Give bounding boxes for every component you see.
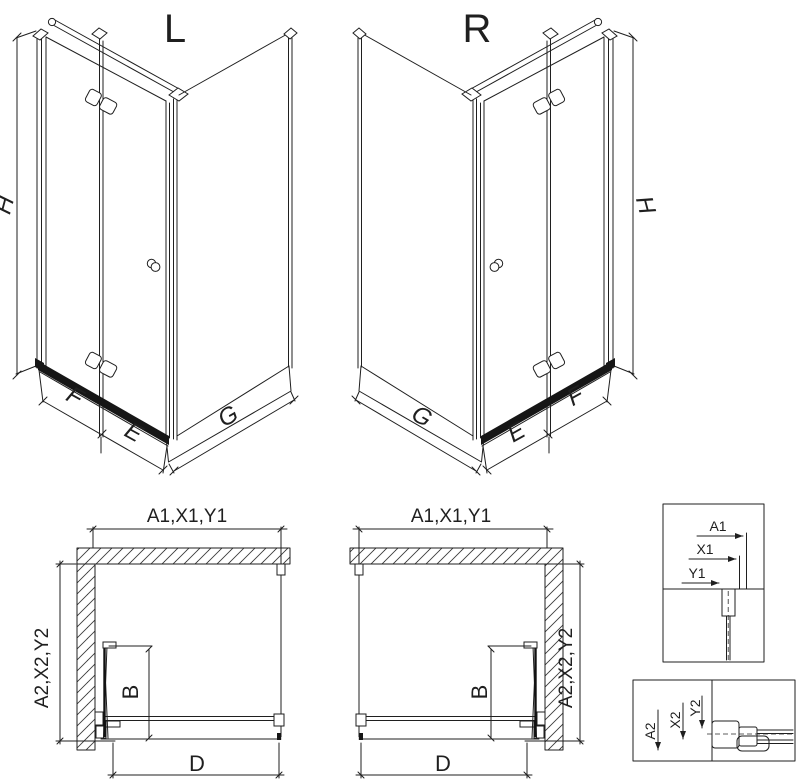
dim-height-label-right: H (630, 193, 661, 217)
plan-view-left: A1,X1,Y1 A2,X2,Y2 B D (32, 506, 290, 778)
detail-x1-label: X1 (696, 541, 713, 557)
shower-enclosure-technical-drawing: L H F E G R H F E G A1,X1,Y1 A2,X2,Y2 B … (0, 0, 800, 784)
plan-view-right: A1,X1,Y1 A2,X2,Y2 B D (350, 506, 584, 778)
plan-left-door-depth-label: B (118, 685, 143, 700)
drawing-canvas: L H F E G R H F E G A1,X1,Y1 A2,X2,Y2 B … (0, 0, 800, 784)
detail-y1-label: Y1 (688, 565, 705, 581)
plan-right-width-label: A1,X1,Y1 (411, 506, 491, 527)
plan-left-entry-width-label: D (189, 751, 205, 776)
wall-hatch-side-left-plan (77, 564, 95, 750)
dim-side-panel-label-right: G (407, 400, 437, 433)
plan-right-door-depth-label: B (467, 685, 492, 700)
variant-right-title: R (463, 7, 492, 51)
detail-a1-label: A1 (709, 518, 726, 534)
iso-view-right: R H F E G (352, 7, 661, 475)
iso-view-left: L H F E G (0, 7, 298, 475)
detail-bottom-profile: A2 X2 Y2 (633, 680, 795, 761)
plan-right-depth-label: A2,X2,Y2 (556, 628, 577, 708)
variant-left-title: L (164, 7, 186, 51)
plan-left-depth-label: A2,X2,Y2 (32, 628, 53, 708)
wall-hatch-top-right-plan (350, 548, 563, 564)
detail-x2-label: X2 (667, 711, 683, 728)
detail-a2-label: A2 (642, 722, 658, 739)
dim-entry-label-right: E (503, 416, 531, 448)
dim-side-panel-label-left: G (213, 400, 243, 433)
plan-left-width-label: A1,X1,Y1 (147, 506, 227, 527)
wall-hatch-top-left-plan (77, 548, 290, 564)
dim-entry-label-left: E (120, 417, 148, 449)
plan-right-entry-width-label: D (435, 751, 451, 776)
detail-wall-profile: A1 X1 Y1 (663, 504, 764, 662)
detail-y2-label: Y2 (687, 699, 703, 716)
